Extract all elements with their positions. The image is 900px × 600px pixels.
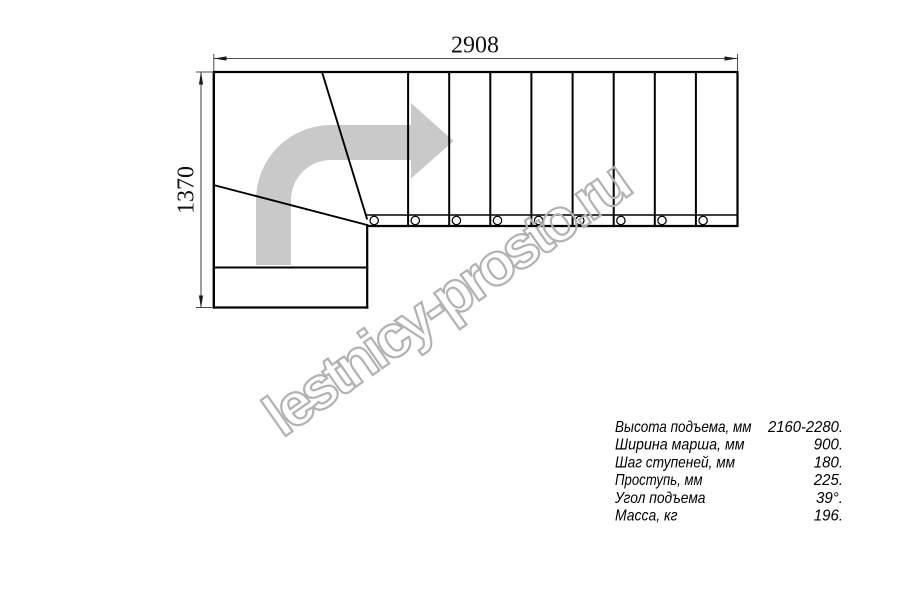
svg-text:225.: 225. [813, 472, 843, 489]
svg-text:Высота подъема, мм: Высота подъема, мм [615, 419, 752, 436]
svg-text:Проступь, мм: Проступь, мм [615, 472, 703, 489]
svg-text:Шаг ступеней, мм: Шаг ступеней, мм [615, 454, 735, 471]
svg-text:2908: 2908 [451, 33, 499, 59]
svg-text:lestnicy-prosto.ru: lestnicy-prosto.ru [251, 148, 640, 449]
svg-text:180.: 180. [814, 454, 843, 471]
svg-text:1370: 1370 [174, 166, 200, 214]
svg-text:Угол подъема: Угол подъема [614, 490, 705, 507]
svg-text:Масса, кг: Масса, кг [615, 508, 678, 525]
svg-text:196.: 196. [814, 508, 843, 525]
svg-text:Ширина марша, мм: Ширина марша, мм [615, 437, 745, 454]
svg-text:39°.: 39°. [816, 490, 843, 507]
svg-text:900.: 900. [814, 437, 843, 454]
svg-text:2160-2280.: 2160-2280. [767, 419, 843, 436]
